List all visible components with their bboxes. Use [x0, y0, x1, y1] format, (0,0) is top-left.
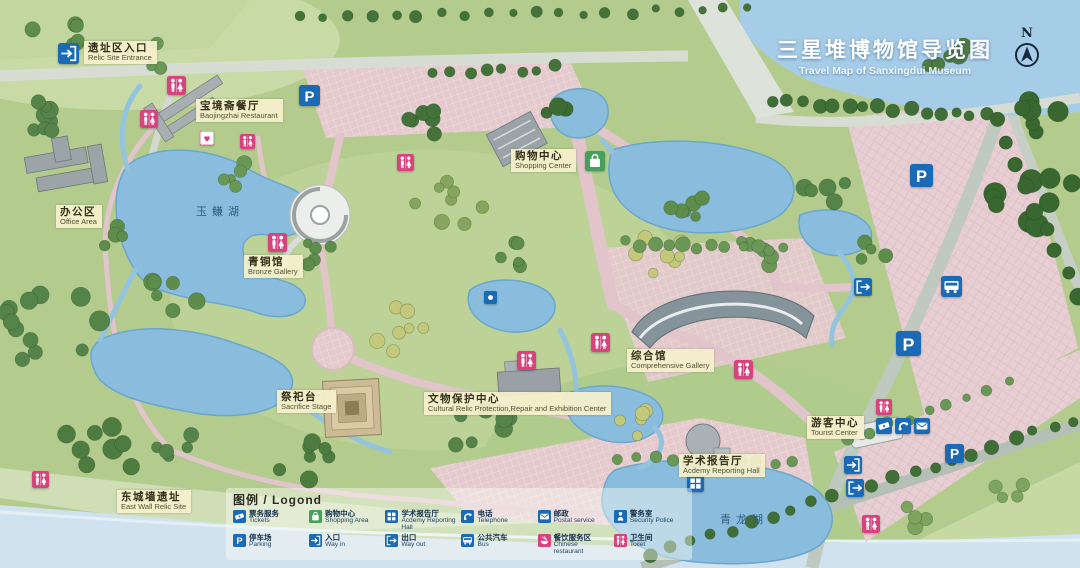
legend-item-academy: 学术报告厅Acdemy Reporting Hall: [385, 510, 456, 532]
place-label-east-wall-relic-site: 东城墙遗址East Wall Relic Site: [117, 490, 191, 513]
legend-item-restaurant: 餐饮服务区Chinese restaurant: [538, 534, 609, 556]
police-icon: [614, 510, 627, 523]
lake-label-0: 玉鳒湖: [196, 203, 244, 219]
toilet-icon: [517, 351, 536, 370]
bus-icon: [461, 534, 474, 547]
bus-icon: [941, 276, 962, 297]
legend-item-text: 学术报告厅Acdemy Reporting Hall: [401, 510, 456, 532]
toilet-icon: [734, 360, 753, 379]
legend-item-text: 入口Way in: [325, 534, 345, 549]
legend-item-text: 电话Telephone: [477, 510, 507, 525]
parking-icon: P: [299, 85, 320, 106]
toilet-icon: [862, 515, 880, 533]
toilet-icon: [140, 110, 158, 128]
compass-arrow-icon: [1013, 41, 1041, 69]
legend-item-text: 公共汽车Bus: [477, 534, 507, 549]
legend-item-postal: 邮政Postal service: [538, 510, 609, 532]
parking-icon: P: [233, 534, 246, 547]
legend-item-text: 购物中心Shopping Area: [325, 510, 368, 525]
svg-text:P: P: [903, 334, 915, 354]
legend-item-police: 警务室Security Police: [614, 510, 685, 532]
wayin-icon: [58, 43, 79, 64]
svg-text:P: P: [236, 536, 242, 546]
legend-panel: 图例 / Logond 票务服务Tickets购物中心Shopping Area…: [226, 488, 692, 560]
legend-items: 票务服务Tickets购物中心Shopping Area学术报告厅Acdemy …: [233, 510, 685, 556]
place-label-academy-reporting-hall: 学术报告厅Acdemy Reporting Hall: [679, 454, 765, 477]
landmark-icon: [484, 291, 497, 304]
toilet-icon: [32, 471, 49, 488]
telephone-icon: [461, 510, 474, 523]
legend-item-bus: 公共汽车Bus: [461, 534, 532, 556]
place-label-cultural-relic-center: 文物保护中心Cultural Relic Protection,Repair a…: [424, 392, 611, 415]
shopping-icon: [585, 151, 605, 171]
legend-item-text: 出口Way out: [401, 534, 425, 549]
parking-icon: P: [910, 164, 933, 187]
legend-item-text: 警务室Security Police: [630, 510, 674, 525]
telephone-icon: [895, 418, 911, 434]
ticket-icon: [876, 418, 892, 434]
wayout-icon: [854, 278, 872, 296]
legend-item-telephone: 电话Telephone: [461, 510, 532, 532]
legend-item-text: 邮政Postal service: [554, 510, 595, 525]
lake-label-1: 青龙湖: [720, 511, 768, 527]
place-label-shopping-center: 购物中心Shopping Center: [511, 149, 576, 172]
wayin-icon: [844, 456, 862, 474]
firstaid-icon: [200, 131, 214, 145]
svg-text:P: P: [304, 88, 314, 105]
postal-icon: [538, 510, 551, 523]
place-label-baojingzhai-restaurant: 宝境斋餐厅Baojingzhai Restaurant: [196, 99, 283, 122]
svg-text:P: P: [916, 167, 927, 186]
toilet-icon: [397, 154, 414, 171]
svg-text:P: P: [950, 447, 959, 462]
shopping-center-en: Shopping Center: [515, 162, 571, 170]
legend-item-wayin: 入口Way in: [309, 534, 380, 556]
comprehensive-gallery-en: Comprehensive Gallery: [631, 362, 709, 370]
map-artwork: [0, 0, 1080, 568]
tourist-center-en: Tourist Center: [811, 429, 859, 437]
wayin-icon: [309, 534, 322, 547]
map-canvas: 三星堆博物馆导览图 Travel Map of Sanxingdui Museu…: [0, 0, 1080, 568]
bronze-gallery-en: Bronze Gallery: [248, 268, 298, 276]
place-label-comprehensive-gallery: 综合馆Comprehensive Gallery: [627, 349, 714, 372]
toilet-icon: [614, 534, 627, 547]
compass-n-label: N: [1012, 26, 1042, 41]
toilet-icon: [240, 134, 255, 149]
east-wall-relic-site-en: East Wall Relic Site: [121, 503, 186, 511]
postal-icon: [914, 418, 930, 434]
academy-icon: [385, 510, 398, 523]
compass: N: [1012, 26, 1042, 74]
toilet-icon: [167, 76, 186, 95]
office-area-en: Office Area: [60, 218, 97, 226]
place-label-relic-site-entrance: 遗址区入口Relic Site Entrance: [84, 41, 157, 64]
place-label-bronze-gallery: 青铜馆Bronze Gallery: [244, 255, 303, 278]
wayout-icon: [846, 479, 864, 497]
toilet-icon: [876, 399, 892, 415]
legend-item-ticket: 票务服务Tickets: [233, 510, 304, 532]
legend-item-text: 停车场Parking: [249, 534, 272, 549]
baojingzhai-restaurant-en: Baojingzhai Restaurant: [200, 112, 278, 120]
ticket-icon: [233, 510, 246, 523]
wayout-icon: [385, 534, 398, 547]
academy-reporting-hall-en: Acdemy Reporting Hall: [683, 467, 760, 475]
parking-icon: P: [945, 444, 964, 463]
place-label-office-area: 办公区Office Area: [56, 205, 102, 228]
legend-item-parking: P停车场Parking: [233, 534, 304, 556]
toilet-icon: [268, 233, 287, 252]
restaurant-icon: [538, 534, 551, 547]
relic-site-entrance-en: Relic Site Entrance: [88, 54, 152, 62]
legend-item-text: 票务服务Tickets: [249, 510, 279, 525]
place-label-sacrifice-stage: 祭祀台Sacrifice Stage: [277, 390, 336, 413]
shopping-icon: [309, 510, 322, 523]
legend-item-shopping: 购物中心Shopping Area: [309, 510, 380, 532]
legend-item-text: 卫生间Toilet: [630, 534, 653, 549]
toilet-icon: [591, 333, 610, 352]
parking-icon: P: [896, 331, 921, 356]
cultural-relic-center-en: Cultural Relic Protection,Repair and Exh…: [428, 405, 606, 413]
legend-item-toilet: 卫生间Toilet: [614, 534, 685, 556]
place-label-tourist-center: 游客中心Tourist Center: [807, 416, 864, 439]
legend-title: 图例 / Logond: [233, 491, 685, 508]
legend-item-wayout: 出口Way out: [385, 534, 456, 556]
legend-item-text: 餐饮服务区Chinese restaurant: [554, 534, 609, 556]
sacrifice-stage-en: Sacrifice Stage: [281, 403, 331, 411]
